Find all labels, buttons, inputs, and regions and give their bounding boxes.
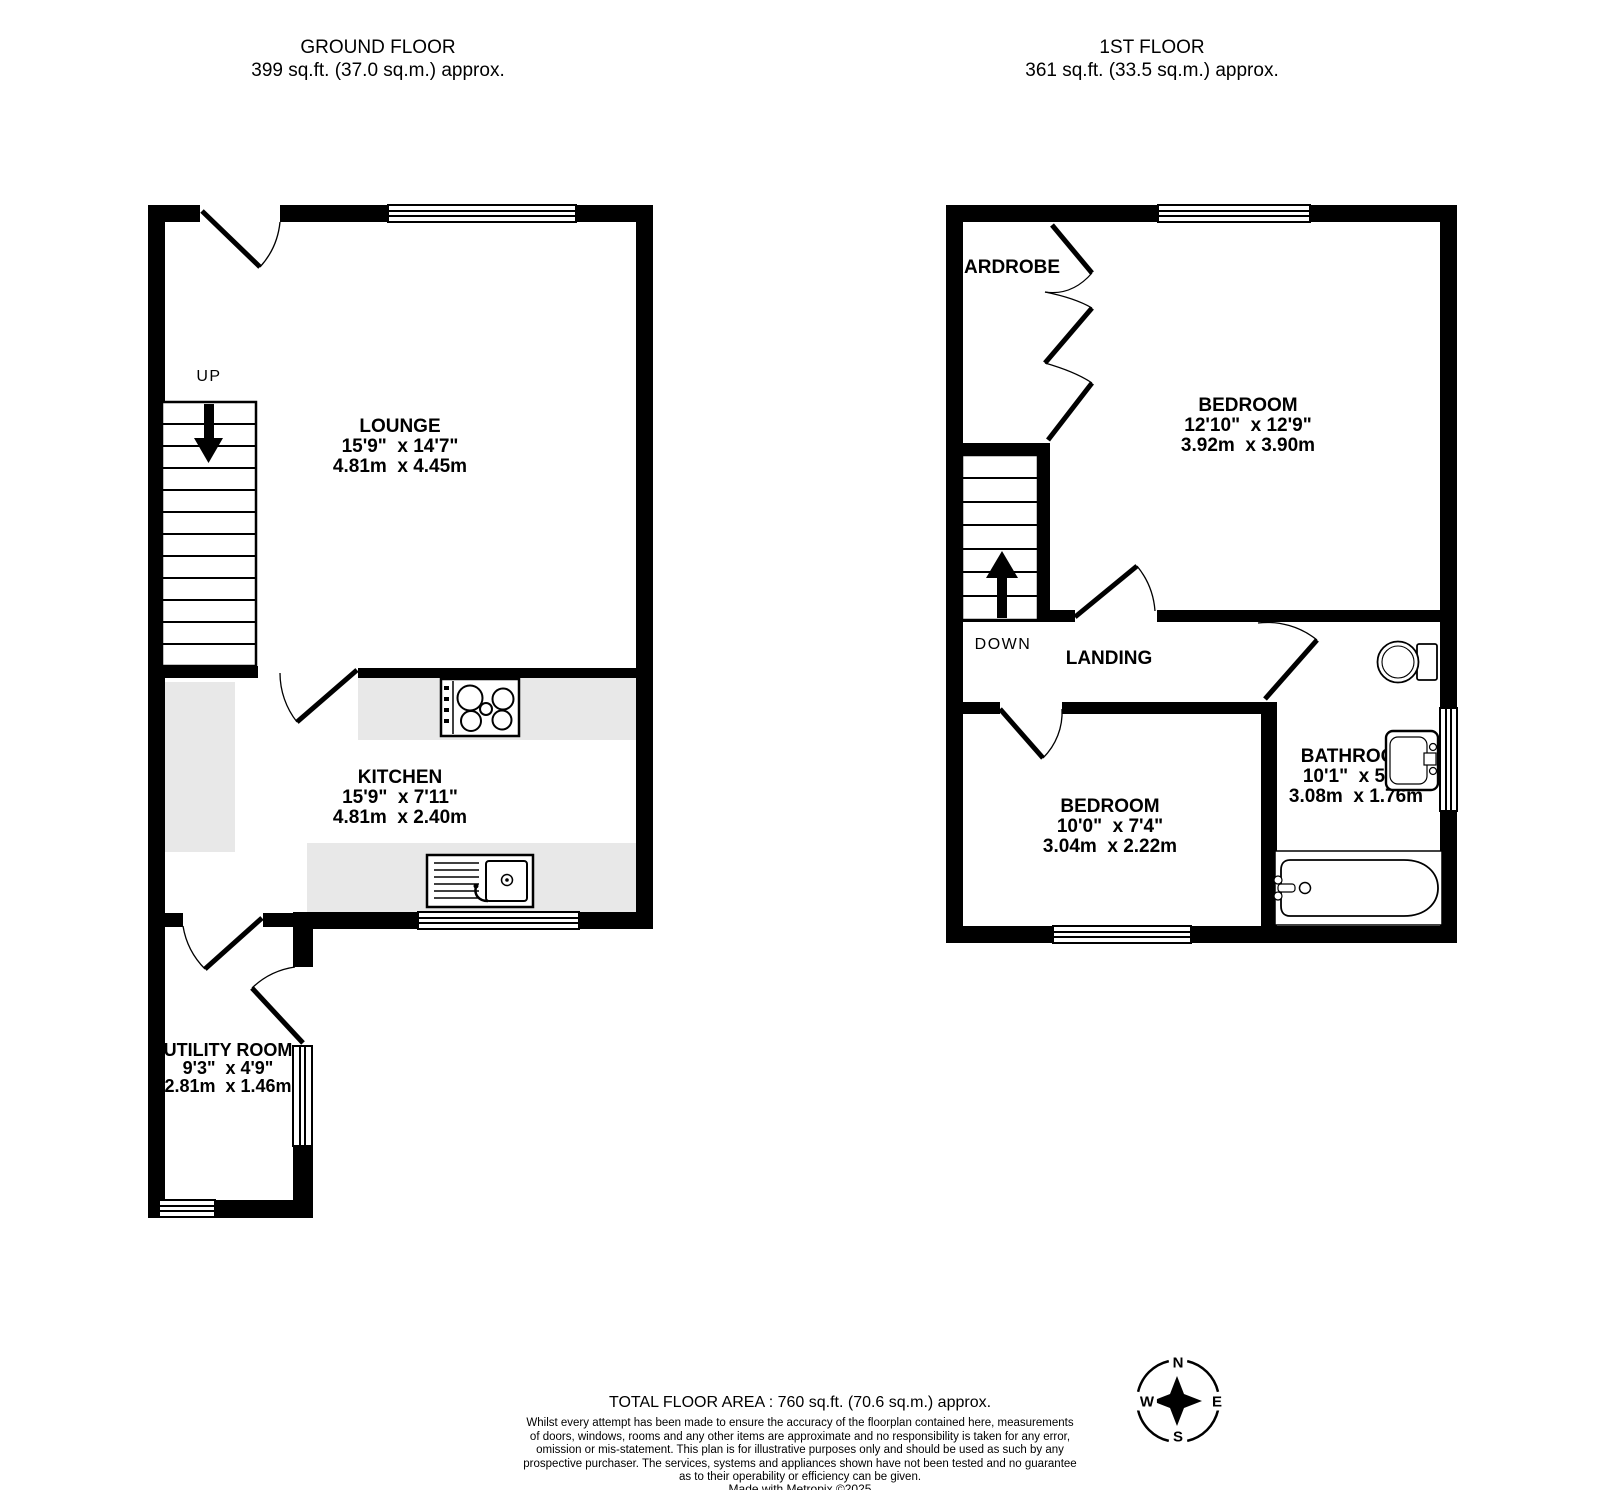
wall: [216, 1200, 313, 1218]
room-name: BATHROOM: [1206, 747, 1506, 767]
metropix-credit: Made with Metropix ©2025: [600, 1482, 1000, 1490]
wall: [946, 926, 1052, 943]
room-dims-imperial: 15'9" x 14'7": [250, 437, 550, 457]
total-floor-area: TOTAL FLOOR AREA : 760 sq.ft. (70.6 sq.m…: [500, 1394, 1100, 1412]
wall: [580, 912, 653, 929]
bathroom-door-leaf: [1265, 640, 1317, 699]
ground-floor-area: 399 sq.ft. (37.0 sq.m.) approx.: [218, 59, 538, 82]
wall: [1192, 926, 1457, 943]
kitchen-counter-bottom: [307, 843, 637, 912]
lounge-window: [387, 204, 577, 223]
first-stairs: [962, 455, 1038, 620]
utility-door-leaf: [205, 918, 262, 969]
front-door-leaf: [202, 211, 260, 267]
wall: [1038, 443, 1050, 622]
first-floor-title: 1ST FLOOR 361 sq.ft. (33.5 sq.m.) approx…: [992, 36, 1312, 82]
room-dims-imperial: 10'1" x 5'9": [1206, 767, 1506, 787]
wall: [263, 913, 293, 927]
utility-back-door-leaf: [252, 988, 303, 1043]
wall: [358, 668, 636, 678]
bathroom-label: BATHROOM 10'1" x 5'9" 3.08m x 1.76m: [1206, 747, 1506, 807]
kitchen-counter-left: [165, 682, 235, 852]
first-floor-area: 361 sq.ft. (33.5 sq.m.) approx.: [992, 59, 1312, 82]
room-dims-metric: 4.81m x 4.45m: [250, 457, 550, 477]
ground-stairs-label: UP: [189, 368, 229, 386]
wall: [1311, 205, 1457, 222]
compass-north-label: N: [1170, 1355, 1187, 1372]
wall: [1157, 610, 1440, 622]
bath-icon: [1274, 851, 1442, 925]
room-dims-imperial: 12'10" x 12'9": [1098, 416, 1398, 436]
utility-room-label: UTILITY ROOM 9'3" x 4'9" 2.81m x 1.46m: [128, 1041, 328, 1095]
wall: [963, 443, 1050, 455]
room-name: BEDROOM: [1098, 396, 1398, 416]
wall: [1062, 702, 1277, 714]
wall: [1440, 205, 1457, 707]
room-name: LOUNGE: [250, 417, 550, 437]
utility-door-swing: [183, 926, 205, 969]
ground-stairs: [162, 402, 256, 666]
compass-south-label: S: [1170, 1429, 1186, 1446]
ground-stairs-direction-arrow: [194, 404, 223, 463]
lounge-label: LOUNGE 15'9" x 14'7" 4.81m x 4.45m: [250, 417, 550, 477]
utility-bottom-window: [158, 1199, 216, 1218]
wall: [1261, 702, 1277, 926]
bedroom2-door-swing: [1043, 709, 1062, 758]
wall: [946, 205, 1157, 222]
bedroom1-label: BEDROOM 12'10" x 12'9" 3.92m x 3.90m: [1098, 396, 1398, 456]
wall: [165, 666, 258, 678]
wall: [963, 702, 1000, 714]
room-dims-imperial: 15'9" x 7'11": [250, 788, 550, 808]
bedroom1-door-swing: [1137, 566, 1155, 611]
kitchen-label: KITCHEN 15'9" x 7'11" 4.81m x 2.40m: [250, 768, 550, 828]
toilet-icon: [1378, 642, 1438, 683]
bedroom1-window: [1157, 204, 1311, 223]
room-dims-metric: 2.81m x 1.46m: [128, 1077, 328, 1095]
wall: [148, 1200, 158, 1218]
room-dims-metric: 4.81m x 2.40m: [250, 808, 550, 828]
room-name: UTILITY ROOM: [128, 1041, 328, 1059]
first-floor-name: 1ST FLOOR: [992, 36, 1312, 59]
utility-back-door-swing: [252, 967, 295, 988]
disclaimer-text: Whilst every attempt has been made to en…: [420, 1417, 1180, 1485]
compass-west-label: W: [1137, 1394, 1157, 1411]
first-stairs-label: DOWN: [953, 636, 1053, 654]
floorplan-graphics: [0, 0, 1600, 1490]
bedroom2-window: [1052, 925, 1192, 944]
bedroom2-door-leaf: [1000, 709, 1043, 758]
first-stairs-direction-arrow: [986, 551, 1018, 618]
wall: [636, 205, 653, 929]
kitchen-door-leaf: [297, 670, 357, 722]
room-dims-metric: 3.92m x 3.90m: [1098, 436, 1398, 456]
bedroom1-door-leaf: [1075, 566, 1137, 617]
wall: [1440, 812, 1457, 943]
room-dims-metric: 3.04m x 2.22m: [960, 837, 1260, 857]
kitchen-window: [417, 911, 580, 930]
room-name: KITCHEN: [250, 768, 550, 788]
wall: [963, 610, 1075, 622]
kitchen-door-swing: [280, 673, 297, 722]
room-dims-metric: 3.08m x 1.76m: [1206, 787, 1506, 807]
wall: [280, 205, 387, 222]
wall: [165, 913, 183, 927]
front-door-swing: [260, 222, 280, 267]
bathroom-door-swing: [1258, 622, 1317, 640]
ground-floor-title: GROUND FLOOR 399 sq.ft. (37.0 sq.m.) app…: [218, 36, 538, 82]
floorplan-canvas: GROUND FLOOR 399 sq.ft. (37.0 sq.m.) app…: [0, 0, 1600, 1490]
room-dims-imperial: 10'0" x 7'4": [960, 817, 1260, 837]
kitchen-counter-top: [358, 678, 637, 740]
ground-floor-name: GROUND FLOOR: [218, 36, 538, 59]
wall: [293, 912, 313, 967]
wardrobe-label: ARDROBE: [964, 258, 1124, 278]
compass-east-label: E: [1209, 1394, 1225, 1411]
room-dims-imperial: 9'3" x 4'9": [128, 1059, 328, 1077]
